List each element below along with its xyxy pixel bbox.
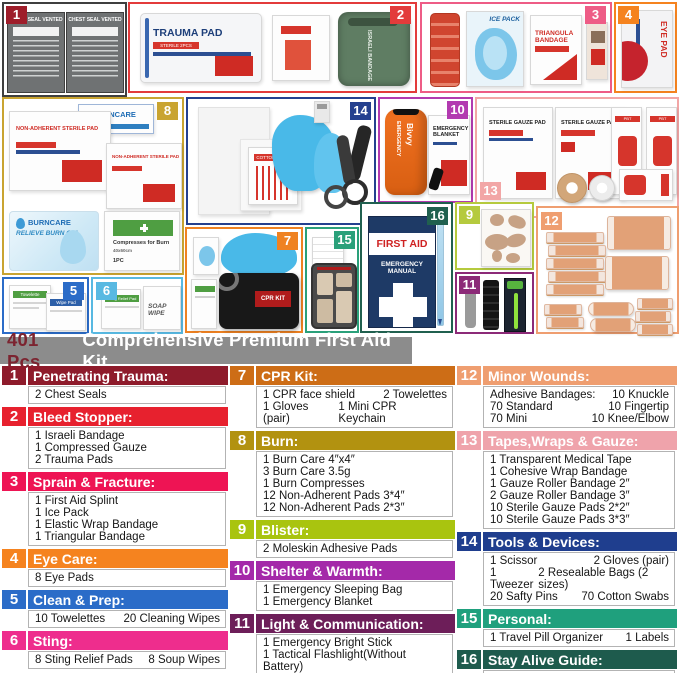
legend-item: 1 Transparent Medical Tape	[490, 454, 632, 466]
legend-item: 10 Knuckle	[612, 389, 669, 401]
bandage-patch	[607, 216, 671, 250]
legend-item: 10 Sterile Gauze Pads 2*2″	[490, 502, 630, 514]
legend-entry-11: 11Light & Communication: 1 Emergency Bri…	[230, 614, 455, 673]
mini-cpr-keychain	[314, 101, 330, 123]
legend-item-line: 70 Mini10 Knee/Elbow	[490, 413, 669, 425]
moleskin-sheet	[481, 209, 531, 267]
soap-wipe-label: SOAP WIPE	[148, 303, 180, 317]
legend-item-line: 70 Standard10 Fingertip	[490, 401, 669, 413]
legend-item-line: 20 Safty Pins70 Cotton Swabs	[490, 591, 669, 603]
legend-items: 1 Burn Care 4″x4″3 Burn Care 3.5g1 Burn …	[256, 451, 453, 517]
badge-15: 15	[334, 231, 355, 249]
legend-items: 2 Moleskin Adhesive Pads	[256, 540, 453, 558]
legend-item: 1 Scissor	[490, 555, 537, 567]
bandage-patch	[605, 256, 669, 290]
badge-13: 13	[480, 182, 501, 200]
eye-pad-label: EYE PAD	[659, 21, 668, 58]
bandage-knuckle	[588, 302, 634, 316]
product-box-blister: 9	[455, 202, 534, 270]
legend-item-line: 1 Cohesive Wrap Bandage	[490, 466, 669, 478]
sterile-gauze-label: STERILE GAUZE PAD	[489, 120, 546, 126]
legend-item: 1 First Aid Splint	[35, 495, 118, 507]
emergency-blanket-pack: EMERGENCY BLANKET	[428, 115, 470, 195]
legend-title: Personal:	[483, 609, 677, 628]
compresses-size: 40x60cm	[113, 248, 132, 253]
legend-item-line: 1 Tactical Flashlight(Without Battery)	[263, 649, 447, 673]
legend-number: 16	[457, 650, 481, 669]
legend-items: 1 First Aid Splint1 Ice Pack1 Elastic Wr…	[28, 492, 226, 546]
legend-item-line: 2 Trauma Pads	[35, 454, 220, 466]
towelette-packet	[191, 279, 217, 329]
israeli-bandage-label: ISRAELI BANDAGE	[366, 30, 372, 81]
legend-items: 1 CPR face shield2 Towelettes1 Gloves (p…	[256, 386, 453, 428]
badge-10: 10	[447, 101, 468, 119]
legend-item-line: 1 Burn Care 4″x4″	[263, 454, 447, 466]
legend-number: 15	[457, 609, 481, 628]
badge-14: 14	[350, 102, 371, 120]
legend-title: Minor Wounds:	[483, 366, 677, 385]
legend-item: 1 Tweezer	[490, 567, 538, 591]
legend-number: 12	[457, 366, 481, 385]
legend-title: Clean & Prep:	[28, 590, 228, 609]
product-box-burn: 8 BURNCARE NON-ADHERENT STERILE PAD NON-…	[2, 97, 184, 275]
legend-item-line: 2 Chest Seals	[35, 389, 220, 401]
legend-number: 9	[230, 520, 254, 539]
legend-items: 1 Emergency Bright Stick1 Tactical Flash…	[256, 634, 453, 673]
compressed-gauze-pack	[272, 15, 330, 81]
legend-item-line: 1 Emergency Sleeping Bag	[263, 584, 447, 596]
chest-seal-package: CHEST SEAL VENTED	[66, 12, 124, 93]
tactical-flashlight	[483, 280, 499, 330]
blanket-label: EMERGENCY BLANKET	[433, 126, 469, 138]
legend-entry-9: 9Blister: 2 Moleskin Adhesive Pads	[230, 520, 455, 558]
bandage-strip	[546, 258, 604, 269]
bandage-strip	[548, 245, 606, 256]
legend-item-line: 3 Burn Care 3.5g	[263, 466, 447, 478]
legend-item-line: 1 Emergency Bright Stick	[263, 637, 447, 649]
legend-item: Adhesive Bandages:	[490, 389, 596, 401]
legend-item-line: 10 Sterile Gauze Pads 2*2″	[490, 502, 669, 514]
legend-item: 12 Non-Adherent Pads 3*4″	[263, 490, 405, 502]
first-aid-splint-roll	[430, 13, 460, 87]
badge-5: 5	[63, 282, 84, 300]
legend-column-1: 1Penetrating Trauma: 2 Chest Seals 2Blee…	[2, 366, 228, 669]
legend-item: 1 Emergency Blanket	[263, 596, 372, 608]
legend-item: 2 Moleskin Adhesive Pads	[263, 543, 397, 555]
product-box-sting: 6 Sting Relief Pad SOAP WIPE	[91, 277, 183, 334]
product-box-shelter: 10 EMERGENCY Bivvy EMERGENCY BLANKET	[378, 97, 473, 203]
legend-item: 12 Non-Adherent Pads 2*3″	[263, 502, 405, 514]
legend-item-line: 1 Scissor2 Gloves (pair)	[490, 555, 669, 567]
legend-column-2: 7CPR Kit: 1 CPR face shield2 Towelettes1…	[230, 366, 455, 673]
bandage-strip	[548, 271, 606, 282]
legend-entry-4: 4Eye Care: 8 Eye Pads	[2, 549, 228, 587]
bandage-strip	[546, 317, 584, 328]
trauma-shears-handle	[324, 185, 348, 209]
legend-item: 8 Soup Wipes	[148, 654, 220, 666]
legend-entry-12: 12Minor Wounds: Adhesive Bandages:10 Knu…	[457, 366, 677, 428]
legend-number: 1	[2, 366, 26, 385]
first-aid-kit-infographic: 1 CHEST SEAL VENTED CHEST SEAL VENTED 2 …	[0, 0, 679, 673]
compresses-qty: 1PC	[113, 258, 124, 264]
legend-item: 2 Trauma Pads	[35, 454, 113, 466]
legend-item: 10 Towelettes	[35, 613, 105, 625]
legend-number: 4	[2, 549, 26, 568]
trauma-pad-sub-label: STERILE 2PCS	[153, 42, 199, 49]
legend-item: 1 Mini CPR Keychain	[338, 401, 447, 425]
legend-item-line: 1 Israeli Bandage	[35, 430, 220, 442]
cpr-face-shield-pack	[193, 237, 219, 275]
legend-title: CPR Kit:	[256, 366, 455, 385]
legend-item-line: 2 Gauze Roller Bandage 3″	[490, 490, 669, 502]
legend-number: 13	[457, 431, 481, 450]
legend-item: 1 Emergency Bright Stick	[263, 637, 392, 649]
product-box-bleed-stopper: 2 TRAUMA PAD STERILE 2PCS ISRAELI BANDAG…	[128, 2, 417, 93]
legend-item-line: 1 Burn Compresses	[263, 478, 447, 490]
legend-entry-14: 14Tools & Devices: 1 Scissor2 Gloves (pa…	[457, 532, 677, 606]
non-adherent-label: NON-ADHERENT STERILE PAD	[16, 126, 98, 132]
product-box-cpr: 7 CPR KIT	[185, 227, 303, 333]
legend-title: Light & Communication:	[256, 614, 455, 633]
chest-seal-package: CHEST SEAL VENTED	[7, 12, 65, 93]
legend-item: 10 Knee/Elbow	[592, 413, 669, 425]
legend-title: Penetrating Trauma:	[28, 366, 228, 385]
bivvy-top-label: EMERGENCY	[395, 121, 401, 156]
legend-item-line: 1 Triangular Bandage	[35, 531, 220, 543]
legend-item: 70 Standard	[490, 401, 553, 413]
legend-entry-6: 6Sting: 8 Sting Relief Pads8 Soup Wipes	[2, 631, 228, 669]
compresses-label: Compresses for Burn	[113, 240, 169, 246]
product-box-guide: 16 FIRST AID EMERGENCY MANUAL	[360, 202, 453, 333]
product-box-minor-wounds: 12	[536, 206, 679, 334]
badge-11: 11	[459, 276, 480, 294]
legend-item: 20 Cleaning Wipes	[123, 613, 220, 625]
legend-item-line: 12 Non-Adherent Pads 3*4″	[263, 490, 447, 502]
legend-items: 1 Scissor2 Gloves (pair)1 Tweezer2 Resea…	[483, 552, 675, 606]
product-box-tapes-gauze: 13 STERILE GAUZE PAD STERILE GAUZE PAD P…	[475, 97, 679, 218]
non-adherent-pad-box: NON-ADHERENT STERILE PAD	[9, 111, 111, 191]
legend-item: 1 Gauze Roller Bandage 2″	[490, 478, 630, 490]
bandage-strip	[635, 311, 671, 322]
pill-organizer	[311, 263, 357, 329]
legend-item: 1 Emergency Sleeping Bag	[263, 584, 402, 596]
legend-items: 1 Israeli Bandage1 Compressed Gauze2 Tra…	[28, 427, 226, 469]
legend-item: 1 Tactical Flashlight(Without Battery)	[263, 649, 447, 673]
legend-item: 70 Mini	[490, 413, 527, 425]
page-title: 401 Pcs Comprehensive Premium First Aid …	[0, 337, 412, 364]
legend-number: 6	[2, 631, 26, 650]
pencil	[437, 218, 444, 326]
ice-pack: ICE PACK	[466, 11, 524, 87]
legend-entry-1: 1Penetrating Trauma: 2 Chest Seals	[2, 366, 228, 404]
legend-item: 1 Israeli Bandage	[35, 430, 125, 442]
legend-number: 11	[230, 614, 254, 633]
cpr-kit-label: CPR KIT	[255, 291, 291, 307]
legend-item: 1 Elastic Wrap Bandage	[35, 519, 158, 531]
legend-item-line: 1 Compressed Gauze	[35, 442, 220, 454]
legend-item: 8 Eye Pads	[35, 572, 94, 584]
legend-number: 14	[457, 532, 481, 551]
legend-item-line: 1 Emergency Blanket	[263, 596, 447, 608]
legend-items: 8 Eye Pads	[28, 569, 226, 587]
legend-item-line: 1 First Aid Splint	[35, 495, 220, 507]
transparent-tape-roll	[589, 175, 615, 201]
soap-wipe-box: SOAP WIPE	[143, 286, 181, 330]
legend-item-line: Adhesive Bandages:10 Knuckle	[490, 389, 669, 401]
carabiner-clip	[219, 273, 239, 291]
legend-item-line: 1 Gloves (pair)1 Mini CPR Keychain	[263, 401, 447, 425]
legend-title: Blister:	[256, 520, 455, 539]
bandage-strip	[544, 304, 582, 315]
product-box-chest-seals: 1 CHEST SEAL VENTED CHEST SEAL VENTED	[2, 2, 127, 97]
legend-title: Tapes,Wraps & Gauze:	[483, 431, 677, 450]
burn-compresses-pack: Compresses for Burn 40x60cm 1PC	[104, 211, 180, 271]
product-box-sprain-fracture: 3 ICE PACK TRIANGULA BANDAGE	[420, 2, 612, 93]
bandage-knuckle	[590, 318, 636, 332]
legend-item: 1 Ice Pack	[35, 507, 89, 519]
legend-item-line: 1 Ice Pack	[35, 507, 220, 519]
manual-subtitle: EMERGENCY MANUAL	[369, 261, 435, 275]
legend-item: 10 Sterile Gauze Pads 3*3″	[490, 514, 630, 526]
legend-item: 10 Fingertip	[608, 401, 669, 413]
badge-6: 6	[96, 282, 117, 300]
legend-number: 3	[2, 472, 26, 491]
legend-entry-15: 15Personal: 1 Travel Pill Organizer1 Lab…	[457, 609, 677, 647]
legend-number: 7	[230, 366, 254, 385]
legend-item: 20 Safty Pins	[490, 591, 558, 603]
legend-item-line: 1 Gauze Roller Bandage 2″	[490, 478, 669, 490]
cohesive-tape-roll	[557, 173, 587, 203]
product-box-tools: 14 COTTON SWAB	[186, 97, 376, 225]
legend-entry-13: 13Tapes,Wraps & Gauze: 1 Transparent Med…	[457, 431, 677, 529]
legend-item-line: 1 Tweezer2 Resealable Bags (2 sizes)	[490, 567, 669, 591]
legend-item-line: 2 Moleskin Adhesive Pads	[263, 543, 447, 555]
badge-4: 4	[618, 6, 639, 24]
towelette-label: Towelette	[13, 291, 47, 298]
legend-title: Stay Alive Guide:	[483, 650, 677, 669]
legend-item: 1 Cohesive Wrap Bandage	[490, 466, 627, 478]
legend-items: 2 Chest Seals	[28, 386, 226, 404]
legend-entry-16: 16Stay Alive Guide: 1 First Aid Handbook…	[457, 650, 677, 673]
legend-item: 2 Towelettes	[383, 389, 447, 401]
ice-pack-label: ICE PACK	[489, 16, 520, 23]
legend-items: 1 Travel Pill Organizer1 Labels	[483, 629, 675, 647]
legend-item: 1 Compressed Gauze	[35, 442, 147, 454]
legend-title: Sprain & Fracture:	[28, 472, 228, 491]
badge-12: 12	[541, 212, 562, 230]
badge-3: 3	[585, 6, 606, 24]
badge-1: 1	[6, 6, 27, 24]
legend-item-line: 1 Transparent Medical Tape	[490, 454, 669, 466]
product-box-clean-prep: 5 Towelette Wipe Pad	[2, 277, 89, 334]
legend-item-line: 10 Sterile Gauze Pads 3*3″	[490, 514, 669, 526]
legend-item: 1 Burn Care 4″x4″	[263, 454, 355, 466]
elastic-wrap-pack	[586, 22, 608, 80]
legend-column-3: 12Minor Wounds: Adhesive Bandages:10 Knu…	[457, 366, 677, 673]
legend-title: Shelter & Warmth:	[256, 561, 455, 580]
legend-entry-7: 7CPR Kit: 1 CPR face shield2 Towelettes1…	[230, 366, 455, 428]
burncare-label: BURNCARE	[28, 219, 71, 227]
legend-item: 1 Gloves (pair)	[263, 401, 338, 425]
legend-item: 2 Chest Seals	[35, 389, 107, 401]
legend-item: 3 Burn Care 3.5g	[263, 466, 351, 478]
wipe-pad-label: Wipe Pad	[50, 299, 82, 306]
legend-item: 1 Labels	[626, 632, 669, 644]
bandage-strip	[546, 232, 604, 243]
legend-title: Bleed Stopper:	[28, 407, 228, 426]
badge-2: 2	[390, 6, 411, 24]
non-adherent-label: NON-ADHERENT STERILE PAD	[112, 154, 179, 159]
legend-title: Tools & Devices:	[483, 532, 677, 551]
chest-seal-label: CHEST SEAL VENTED	[67, 17, 123, 23]
legend-item: 8 Sting Relief Pads	[35, 654, 133, 666]
burn-gel-pouch: BURNCARE RELIEVE BURN GEL	[9, 211, 99, 271]
legend-item: 2 Gloves (pair)	[594, 555, 669, 567]
first-aid-manual: FIRST AID EMERGENCY MANUAL	[368, 216, 436, 328]
badge-16: 16	[427, 207, 448, 225]
legend-items: 1 Transparent Medical Tape1 Cohesive Wra…	[483, 451, 675, 529]
first-aid-title: FIRST AID	[377, 239, 428, 250]
legend-item-line: 1 Elastic Wrap Bandage	[35, 519, 220, 531]
legend-title: Burn:	[256, 431, 455, 450]
legend-items: 10 Towelettes20 Cleaning Wipes	[28, 610, 226, 628]
legend-number: 5	[2, 590, 26, 609]
legend-item-line: 8 Eye Pads	[35, 572, 220, 584]
legend-number: 2	[2, 407, 26, 426]
trauma-pad-label: TRAUMA PAD	[153, 28, 222, 39]
product-box-light: 11	[455, 272, 534, 334]
bandage-strip	[637, 324, 673, 335]
legend-items: 8 Sting Relief Pads8 Soup Wipes	[28, 651, 226, 669]
legend-items: 1 Emergency Sleeping Bag1 Emergency Blan…	[256, 581, 453, 611]
legend-entry-10: 10Shelter & Warmth: 1 Emergency Sleeping…	[230, 561, 455, 611]
pbt-label: PBT BANDAGE	[650, 116, 675, 122]
triangular-bandage-label: TRIANGULA BANDAGE	[535, 30, 581, 44]
legend-entry-5: 5Clean & Prep: 10 Towelettes20 Cleaning …	[2, 590, 228, 628]
cohesive-wrap-pack	[619, 169, 673, 201]
legend-entry-3: 3Sprain & Fracture: 1 First Aid Splint1 …	[2, 472, 228, 546]
bandage-strip	[637, 298, 673, 309]
badge-8: 8	[157, 102, 178, 120]
badge-9: 9	[459, 206, 480, 224]
emergency-bivvy: EMERGENCY Bivvy	[385, 109, 427, 195]
glow-stick-pack	[504, 278, 526, 332]
legend-item-line: 10 Towelettes20 Cleaning Wipes	[35, 613, 220, 625]
legend-title: Eye Care:	[28, 549, 228, 568]
product-box-personal: 15	[305, 227, 359, 333]
legend-item: 1 Travel Pill Organizer	[490, 632, 603, 644]
trauma-pad-pouch: TRAUMA PAD STERILE 2PCS	[140, 13, 262, 83]
legend-item-line: 1 Travel Pill Organizer1 Labels	[490, 632, 669, 644]
legend-item: 2 Gauze Roller Bandage 3″	[490, 490, 630, 502]
legend-entry-8: 8Burn: 1 Burn Care 4″x4″3 Burn Care 3.5g…	[230, 431, 455, 517]
bandage-strip	[546, 284, 604, 295]
legend-item: 1 CPR face shield	[263, 389, 355, 401]
survival-whistle	[465, 290, 476, 328]
legend-item-line: 8 Sting Relief Pads8 Soup Wipes	[35, 654, 220, 666]
legend-item: 1 Burn Compresses	[263, 478, 365, 490]
legend-item-line: 12 Non-Adherent Pads 2*3″	[263, 502, 447, 514]
legend-title: Sting:	[28, 631, 228, 650]
legend-item: 70 Cotton Swabs	[581, 591, 669, 603]
triangular-bandage-pack: TRIANGULA BANDAGE	[530, 15, 582, 85]
non-adherent-pad-box: NON-ADHERENT STERILE PAD	[106, 143, 182, 209]
legend-entry-2: 2Bleed Stopper: 1 Israeli Bandage1 Compr…	[2, 407, 228, 469]
badge-7: 7	[277, 232, 298, 250]
legend-item: 1 Triangular Bandage	[35, 531, 145, 543]
legend-items: Adhesive Bandages:10 Knuckle70 Standard1…	[483, 386, 675, 428]
towelette-packet: Towelette	[9, 285, 51, 329]
pbt-label: PBT BANDAGE	[615, 116, 640, 122]
legend-item-line: 1 CPR face shield2 Towelettes	[263, 389, 447, 401]
bivvy-label: Bivvy	[405, 123, 414, 146]
legend-number: 8	[230, 431, 254, 450]
legend-item: 2 Resealable Bags (2 sizes)	[538, 567, 669, 591]
product-box-eye-care: 4 EYE PAD	[614, 2, 677, 93]
legend-number: 10	[230, 561, 254, 580]
sterile-gauze-label: STERILE GAUZE PAD	[561, 120, 618, 126]
cpr-kit-pouch: CPR KIT	[219, 273, 299, 329]
